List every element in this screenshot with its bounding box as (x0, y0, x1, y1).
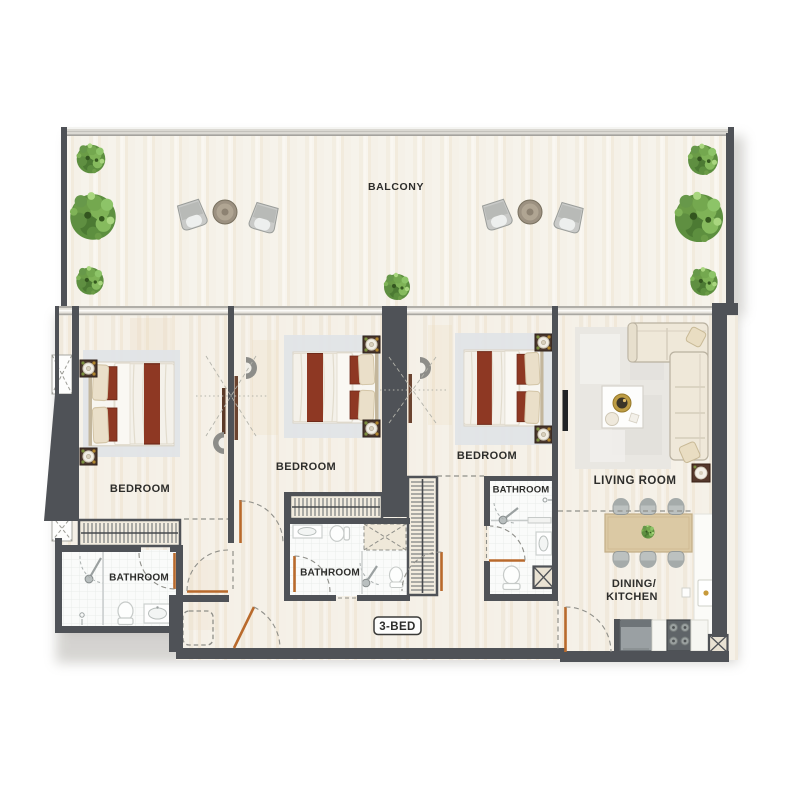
svg-text:BALCONY: BALCONY (368, 181, 424, 193)
svg-text:BEDROOM: BEDROOM (110, 483, 170, 495)
svg-text:BEDROOM: BEDROOM (276, 461, 336, 473)
svg-text:BATHROOM: BATHROOM (493, 485, 550, 496)
svg-text:KITCHEN: KITCHEN (606, 591, 658, 603)
svg-text:BATHROOM: BATHROOM (109, 573, 169, 584)
svg-text:DINING/: DINING/ (612, 578, 656, 590)
svg-text:BEDROOM: BEDROOM (457, 450, 517, 462)
svg-text:BATHROOM: BATHROOM (300, 568, 360, 579)
svg-text:LIVING ROOM: LIVING ROOM (594, 475, 677, 487)
svg-text:3-BED: 3-BED (379, 621, 416, 633)
